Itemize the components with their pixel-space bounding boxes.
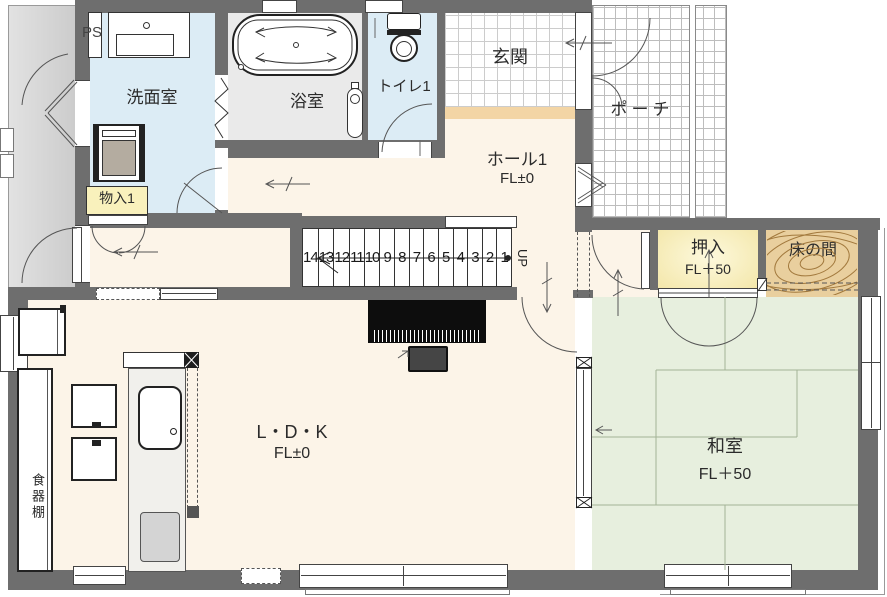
window-sill xyxy=(305,589,510,595)
interior-window-dashed xyxy=(96,288,160,300)
counter-overhang-dashed xyxy=(187,368,188,508)
floor-japanese-room xyxy=(592,297,858,570)
hall-open-boundary-dashed xyxy=(577,232,578,297)
door-opening xyxy=(378,142,432,158)
fridge xyxy=(18,308,66,356)
stair-tread: 4 xyxy=(453,229,468,286)
floor-outside-passage xyxy=(8,5,75,287)
washing-machine-drum xyxy=(102,140,136,176)
hall-open-boundary-dashed xyxy=(589,232,590,297)
post-x xyxy=(576,357,592,368)
kitchen-sink xyxy=(138,386,182,450)
wall-segment xyxy=(575,218,880,230)
passage-gate xyxy=(0,128,14,152)
stairs-landing xyxy=(445,216,517,228)
label-washroom: 洗面室 xyxy=(112,88,192,108)
stair-tread: 1 xyxy=(496,229,511,286)
piano-bench xyxy=(408,346,448,372)
kitchen-faucet xyxy=(170,428,177,435)
door-leaf xyxy=(641,232,650,289)
entrance-door-frame xyxy=(575,12,592,110)
label-closet: 押入 xyxy=(673,238,743,258)
eaves-line xyxy=(884,228,885,594)
label-hall-level: FL±0 xyxy=(462,170,572,187)
cupboard-inner-line xyxy=(47,370,48,570)
label-storage1: 物入1 xyxy=(88,190,146,206)
window-mullion xyxy=(862,362,880,363)
cupboard-label: 食器棚 xyxy=(24,432,44,562)
window-mullion xyxy=(75,575,124,576)
label-ps: PS xyxy=(77,24,107,41)
staircase: 14 13 12 11 10 9 8 7 6 5 4 3 2 1 xyxy=(302,228,512,287)
porch-edge-strip xyxy=(689,5,696,218)
stairs-up-label: UP xyxy=(510,246,530,270)
vanity-faucet xyxy=(143,22,150,29)
closet-sliding-track xyxy=(658,288,758,298)
door-opening xyxy=(215,75,228,140)
stair-tread: 8 xyxy=(394,229,409,286)
toilet-seat xyxy=(396,41,412,57)
door-opening xyxy=(215,148,228,210)
counter-end-post xyxy=(187,506,199,518)
floor-tokonoma xyxy=(766,230,858,297)
toilet-tank xyxy=(387,13,421,30)
stair-tread: 11 xyxy=(349,229,364,286)
window xyxy=(241,568,281,584)
label-japanese-room-level: FL＋50 xyxy=(675,460,775,484)
wall-segment xyxy=(290,287,517,300)
stair-tread: 7 xyxy=(409,229,424,286)
washing-machine-side xyxy=(93,124,99,182)
wall-segment xyxy=(650,220,658,290)
window-mullion xyxy=(162,293,216,294)
bathtub xyxy=(232,14,358,76)
label-porch: ポーチ xyxy=(602,100,682,120)
label-bathroom: 浴室 xyxy=(278,92,336,112)
label-ldk: L・D・K xyxy=(232,422,352,443)
stair-tread: 2 xyxy=(482,229,497,286)
stair-tread: 6 xyxy=(423,229,438,286)
entrance-step xyxy=(445,107,575,119)
window xyxy=(365,0,403,13)
window-mullion xyxy=(871,298,872,428)
label-hall: ホール1 xyxy=(462,150,572,170)
window-sill xyxy=(670,589,806,595)
storage-door-frame xyxy=(88,215,148,225)
label-closet-level: FL＋50 xyxy=(670,259,746,279)
shower-stub xyxy=(351,82,359,89)
stair-tread: 12 xyxy=(333,229,349,286)
label-japanese-room: 和室 xyxy=(675,436,775,457)
label-toilet: トイレ1 xyxy=(374,78,434,95)
kitchen-stove xyxy=(140,512,180,562)
stair-tread: 10 xyxy=(364,229,380,286)
passage-gate xyxy=(0,154,14,178)
window-mullion xyxy=(403,566,404,586)
door-leaf xyxy=(72,227,82,283)
washing-machine-panel xyxy=(102,130,136,137)
stair-tread: 9 xyxy=(379,229,394,286)
table-tab xyxy=(92,422,101,428)
stair-tread: 14 xyxy=(303,229,318,286)
piano-keys xyxy=(374,330,480,342)
bath-drain xyxy=(238,64,244,70)
door-opening xyxy=(75,80,90,147)
interior-window xyxy=(160,288,218,300)
window xyxy=(262,0,297,13)
stair-tread: 13 xyxy=(318,229,334,286)
fridge-hinge xyxy=(60,305,66,313)
floor-plan: 14 13 12 11 10 9 8 7 6 5 4 3 2 1 UP xyxy=(0,0,887,597)
label-ldk-level: FL±0 xyxy=(232,445,352,463)
stair-tread: 3 xyxy=(467,229,482,286)
counter-overhang-dashed xyxy=(197,368,198,508)
wall-segment xyxy=(437,0,445,158)
shower-head xyxy=(350,94,360,104)
label-entrance: 玄関 xyxy=(478,47,542,68)
sliding-door xyxy=(576,368,592,498)
post-x xyxy=(576,497,592,508)
washing-machine-side xyxy=(139,124,145,182)
wall-segment xyxy=(573,290,593,298)
vanity-bowl xyxy=(116,34,174,56)
porch-side-door-frame xyxy=(575,163,592,207)
stair-tread: 5 xyxy=(438,229,453,286)
tokonoma-post xyxy=(757,278,767,291)
window-mullion xyxy=(728,566,729,586)
wall-segment xyxy=(290,216,445,228)
fridge-door-line xyxy=(57,310,58,354)
sliding-door-line xyxy=(583,370,584,496)
window-mullion xyxy=(13,317,14,370)
table-tab xyxy=(92,440,101,446)
label-tokonoma: 床の間 xyxy=(774,242,852,260)
kitchen-hood-post xyxy=(184,352,199,368)
